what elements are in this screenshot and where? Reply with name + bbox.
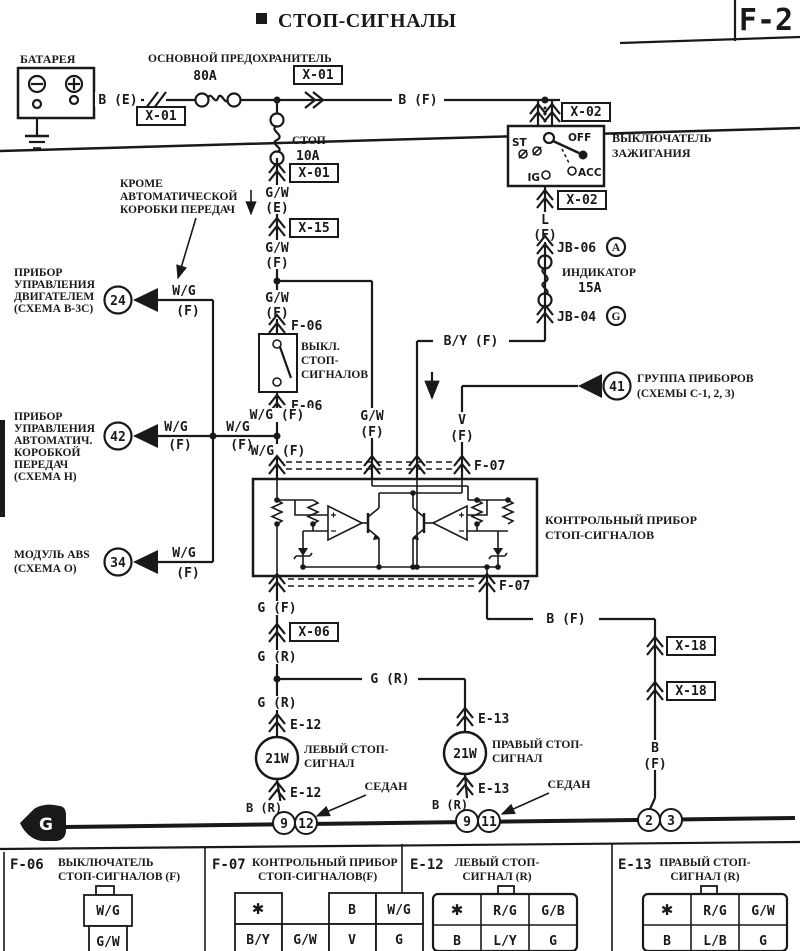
svg-text:(F): (F) [265,256,288,271]
svg-text:R/G: R/G [703,904,727,919]
indicator-fuse: ИНДИКАТОР 15A [539,256,636,307]
connector-label-e12-top: E-12 [290,718,321,733]
svg-text:АВТОМАТИЧЕСКОЙ: АВТОМАТИЧЕСКОЙ [120,189,237,203]
svg-text:B/Y: B/Y [246,933,270,948]
schematic-page: СТОП-СИГНАЛЫ F-2 БАТ [0,0,800,951]
stop-fuse-rating: 10A [296,149,320,164]
table-e13: E-13 ПРАВЫЙ СТОП- СИГНАЛ (R) ✱ R/G G/W B… [618,855,787,951]
svg-text:СИГНАЛ (R): СИГНАЛ (R) [670,871,739,883]
svg-text:34: 34 [110,556,126,571]
brake-light-switch: ВЫКЛ. СТОП- СИГНАЛОВ [259,334,368,392]
svg-text:(F): (F) [643,757,666,772]
svg-text:B: B [663,934,671,949]
svg-text:G/W: G/W [96,935,120,950]
svg-text:X-01: X-01 [298,166,329,181]
svg-text:21W: 21W [265,752,289,767]
header: СТОП-СИГНАЛЫ F-2 [0,0,800,151]
svg-text:КРОМЕ: КРОМЕ [120,178,163,190]
ignition-switch: ST OFF IG ACC ВЫКЛЮЧАТЕЛЬ ЗАЖИГАНИЯ [508,126,712,186]
title-bullet-icon [256,13,267,24]
fuse-icon [271,114,284,127]
left-stop-lamp: 21W ЛЕВЫЙ СТОП- СИГНАЛ [256,737,389,779]
wire-label-wg-left1: W/G [164,420,188,435]
svg-text:УПРАВЛЕНИЯ: УПРАВЛЕНИЯ [14,279,96,291]
unit-at-control: ПРИБОР УПРАВЛЕНИЯ АВТОМАТИЧ. КОРОБКОЙ ПЕ… [14,411,158,483]
ground-pin: 12 [298,817,314,832]
ignition-label-2: ЗАЖИГАНИЯ [612,146,691,160]
svg-text:X-06: X-06 [298,625,329,640]
connector-label-f06-top: F-06 [291,319,322,334]
svg-text:УПРАВЛЕНИЯ: УПРАВЛЕНИЯ [14,423,96,435]
connector-label-x06: X-06 [290,623,338,641]
wire-label-b-y: B/Y (F) [444,334,499,349]
svg-text:G: G [759,934,767,949]
note-arrow-icon [178,218,196,278]
wire-label-gw-branch: G/W [360,409,384,424]
svg-text:W/G: W/G [96,904,120,919]
svg-text:X-15: X-15 [298,221,329,236]
svg-text:АВТОМАТИЧ.: АВТОМАТИЧ. [14,435,92,447]
svg-text:(СХЕМА B-3C): (СХЕМА B-3C) [14,303,93,315]
page-code: F-2 [739,3,793,38]
ignition-pos-ig: IG [527,172,540,184]
connector-label-x18-top: X-18 [667,637,715,655]
svg-text:✱: ✱ [252,900,265,918]
wire-label-g-r-branch: G (R) [370,672,409,687]
wire-label-wg-left2: W/G [226,420,250,435]
ignition-pos-acc: ACC [578,167,602,179]
svg-text:КОРОБКИ ПЕРЕДАЧ: КОРОБКИ ПЕРЕДАЧ [120,204,235,216]
svg-text:G/W: G/W [751,904,775,919]
svg-text:L/Y: L/Y [493,934,517,949]
svg-text:X-02: X-02 [566,193,597,208]
connector-label-jb06: JB-06 [557,241,596,256]
indicator-fuse-rating: 15A [578,281,602,296]
connector-label-jb04: JB-04 [557,310,596,325]
svg-text:X-02: X-02 [570,105,601,120]
unit-engine-control: ПРИБОР УПРАВЛЕНИЯ ДВИГАТЕЛЕМ (СХЕМА B-3C… [14,267,200,319]
connector-arrow-icon [133,288,158,312]
connector-label-e12-bottom: E-12 [290,786,321,801]
connector-label-x01-stop: X-01 [290,164,338,182]
svg-text:W/G: W/G [387,903,411,918]
svg-text:✱: ✱ [661,901,674,919]
connector-label-x18-bottom: X-18 [667,682,715,700]
svg-text:X-18: X-18 [675,639,706,654]
svg-text:W/G: W/G [172,284,196,299]
svg-text:ВЫКЛЮЧАТЕЛЬ: ВЫКЛЮЧАТЕЛЬ [58,857,154,869]
connector-label-x01-battery: X-01 [137,107,185,125]
svg-text:42: 42 [110,430,126,445]
note-except-at: КРОМЕ АВТОМАТИЧЕСКОЙ КОРОБКИ ПЕРЕДАЧ [120,178,251,278]
svg-text:41: 41 [609,380,625,395]
svg-text:СИГНАЛ: СИГНАЛ [492,753,543,765]
battery-label: БАТАРЕЯ [20,52,76,66]
svg-text:ВЫКЛ.: ВЫКЛ. [301,341,340,353]
ground-pin: 2 [645,814,653,829]
connector-label-x15: X-15 [290,219,338,237]
note-arrow-icon [317,795,366,816]
table-f06: F-06 ВЫКЛЮЧАТЕЛЬ СТОП-СИГНАЛОВ (F) W/G G… [10,857,180,951]
svg-text:24: 24 [110,294,126,309]
svg-text:A: A [612,242,621,254]
wire-label-b-f-top: B (F) [398,93,437,108]
svg-text:G/W: G/W [293,933,317,948]
connector-arrow-icon [133,424,158,448]
ground-pin: 11 [481,815,497,830]
wire-label-b-f-right: B (F) [546,612,585,627]
connector-label-f07-top: F-07 [474,459,505,474]
connector-label-x02-bottom: X-02 [558,191,606,209]
svg-text:ПРИБОР: ПРИБОР [14,267,62,279]
stop-fuse-label: СТОП [292,135,326,147]
indicator-fuse-label: ИНДИКАТОР [562,267,636,279]
svg-text:(F): (F) [176,566,199,581]
svg-text:F-06: F-06 [10,857,44,873]
connector-label-e13-bottom: E-13 [478,782,509,797]
svg-text:X-01: X-01 [302,68,333,83]
table-e12: E-12 ЛЕВЫЙ СТОП- СИГНАЛ (R) ✱ R/G G/B B … [410,855,577,951]
connector-arrow-icon [133,550,158,574]
svg-text:СИГНАЛ: СИГНАЛ [304,758,355,770]
table-f07: F-07 КОНТРОЛЬНЫЙ ПРИБОР СТОП-СИГНАЛОВ(F)… [212,855,423,951]
stop-signals-wiring-diagram: СТОП-СИГНАЛЫ F-2 БАТ [0,0,800,951]
right-stop-lamp: 21W ПРАВЫЙ СТОП- СИГНАЛ [444,732,583,774]
connector-label-e13-top: E-13 [478,712,509,727]
svg-text:(F): (F) [360,425,383,440]
page-title: СТОП-СИГНАЛЫ [278,10,457,32]
ground-pin: 9 [280,817,288,832]
ignition-pos-off: OFF [568,132,591,144]
connector-label-x01-main: X-01 [294,66,342,84]
connector-label-x02-top: X-02 [562,103,610,121]
svg-text:КОРОБКОЙ: КОРОБКОЙ [14,445,81,459]
svg-text:B: B [348,903,356,918]
ignition-label-1: ВЫКЛЮЧАТЕЛЬ [612,131,712,145]
sedan-note: СЕДАН [548,777,592,791]
svg-text:G: G [612,311,621,323]
svg-text:(СХЕМА H): (СХЕМА H) [14,471,77,483]
svg-text:СИГНАЛОВ: СИГНАЛОВ [301,369,368,381]
control-unit: КОНТРОЛЬНЫЙ ПРИБОР СТОП-СИГНАЛОВ [253,479,697,576]
ground-pin: 9 [463,815,471,830]
svg-text:ПРАВЫЙ СТОП-: ПРАВЫЙ СТОП- [492,737,583,751]
svg-text:✱: ✱ [451,901,464,919]
unit-instrument-cluster: 41 ГРУППА ПРИБОРОВ (СХЕМЫ C-1, 2, 3) [578,373,754,401]
svg-text:СТОП-: СТОП- [301,355,339,367]
svg-text:W/G: W/G [172,546,196,561]
wire-label-l: L [541,213,549,228]
svg-text:ЛЕВЫЙ СТОП-: ЛЕВЫЙ СТОП- [455,855,540,869]
wire-label-b-r-left: B (R) [246,801,282,815]
svg-text:(СХЕМЫ C-1, 2, 3): (СХЕМЫ C-1, 2, 3) [637,388,735,400]
ignition-pos-st: ST [512,137,528,149]
wire-label-wg-above: W/G (F) [250,408,305,423]
wire-label-b-right: B [651,741,659,756]
stop-fuse: СТОП 10A [271,114,326,165]
svg-text:X-18: X-18 [675,684,706,699]
ground-symbol: G [39,815,53,835]
svg-text:ДВИГАТЕЛЕМ: ДВИГАТЕЛЕМ [14,291,94,303]
wire-label-gw-e: G/W [265,186,289,201]
svg-text:СТОП-СИГНАЛОВ(F): СТОП-СИГНАЛОВ(F) [258,871,377,883]
wire-label-g-f: G (F) [257,601,296,616]
wire-label-v-f: (F) [450,429,473,444]
sedan-note: СЕДАН [365,779,409,793]
wire-label-g-r-1: G (R) [257,650,296,665]
svg-text:X-01: X-01 [145,109,176,124]
svg-text:(E): (E) [265,201,288,216]
svg-text:(F): (F) [168,438,191,453]
wire-label-gw-f1: G/W [265,241,289,256]
svg-text:E-12: E-12 [410,857,444,873]
connector-pinout-tables: F-06 ВЫКЛЮЧАТЕЛЬ СТОП-СИГНАЛОВ (F) W/G G… [0,842,800,951]
svg-text:(F): (F) [230,438,253,453]
svg-text:ПРИБОР: ПРИБОР [14,411,62,423]
svg-text:E-13: E-13 [618,857,652,873]
svg-text:R/G: R/G [493,904,517,919]
ground-bus: G 9 12 9 11 2 3 [20,805,795,841]
scan-artifact [0,420,5,517]
svg-text:21W: 21W [453,747,477,762]
ground-pin: 3 [667,814,675,829]
svg-text:ПРАВЫЙ СТОП-: ПРАВЫЙ СТОП- [659,855,750,869]
control-unit-label-2: СТОП-СИГНАЛОВ [545,528,654,542]
svg-text:G: G [549,934,557,949]
svg-text:ГРУППА ПРИБОРОВ: ГРУППА ПРИБОРОВ [637,373,754,385]
control-unit-label-1: КОНТРОЛЬНЫЙ ПРИБОР [545,513,697,527]
wire-label-g-r-2: G (R) [257,696,296,711]
svg-text:V: V [348,933,356,948]
battery: БАТАРЕЯ [18,52,94,148]
svg-text:(СХЕМА O): (СХЕМА O) [14,563,77,575]
wire-label-b-e: B (E) [98,93,137,108]
wire-label-gw-f2: G/W [265,291,289,306]
svg-text:L/B: L/B [703,934,727,949]
svg-text:B: B [453,934,461,949]
svg-text:(F): (F) [176,304,199,319]
svg-text:КОНТРОЛЬНЫЙ ПРИБОР: КОНТРОЛЬНЫЙ ПРИБОР [252,855,398,869]
unit-abs-module: МОДУЛЬ ABS (СХЕМА O) 34 W/G (F) [14,546,200,581]
svg-text:G/B: G/B [541,904,565,919]
svg-text:СИГНАЛ (R): СИГНАЛ (R) [462,871,531,883]
svg-text:СТОП-СИГНАЛОВ (F): СТОП-СИГНАЛОВ (F) [58,871,180,883]
svg-text:МОДУЛЬ ABS: МОДУЛЬ ABS [14,549,90,561]
wire-label-v: V [458,413,466,428]
connector-label-f07-bottom: F-07 [499,579,530,594]
svg-text:ЛЕВЫЙ СТОП-: ЛЕВЫЙ СТОП- [304,742,389,756]
svg-text:ПЕРЕДАЧ: ПЕРЕДАЧ [14,459,69,471]
connector-arrow-icon [578,374,602,398]
svg-text:F-07: F-07 [212,857,246,873]
main-fuse-rating: 80A [193,69,217,84]
main-fuse-label: ОСНОВНОЙ ПРЕДОХРАНИТЕЛЬ [148,51,332,65]
svg-text:G: G [395,933,403,948]
inline-connector-icon [146,92,166,108]
fuse-icon [196,94,209,107]
